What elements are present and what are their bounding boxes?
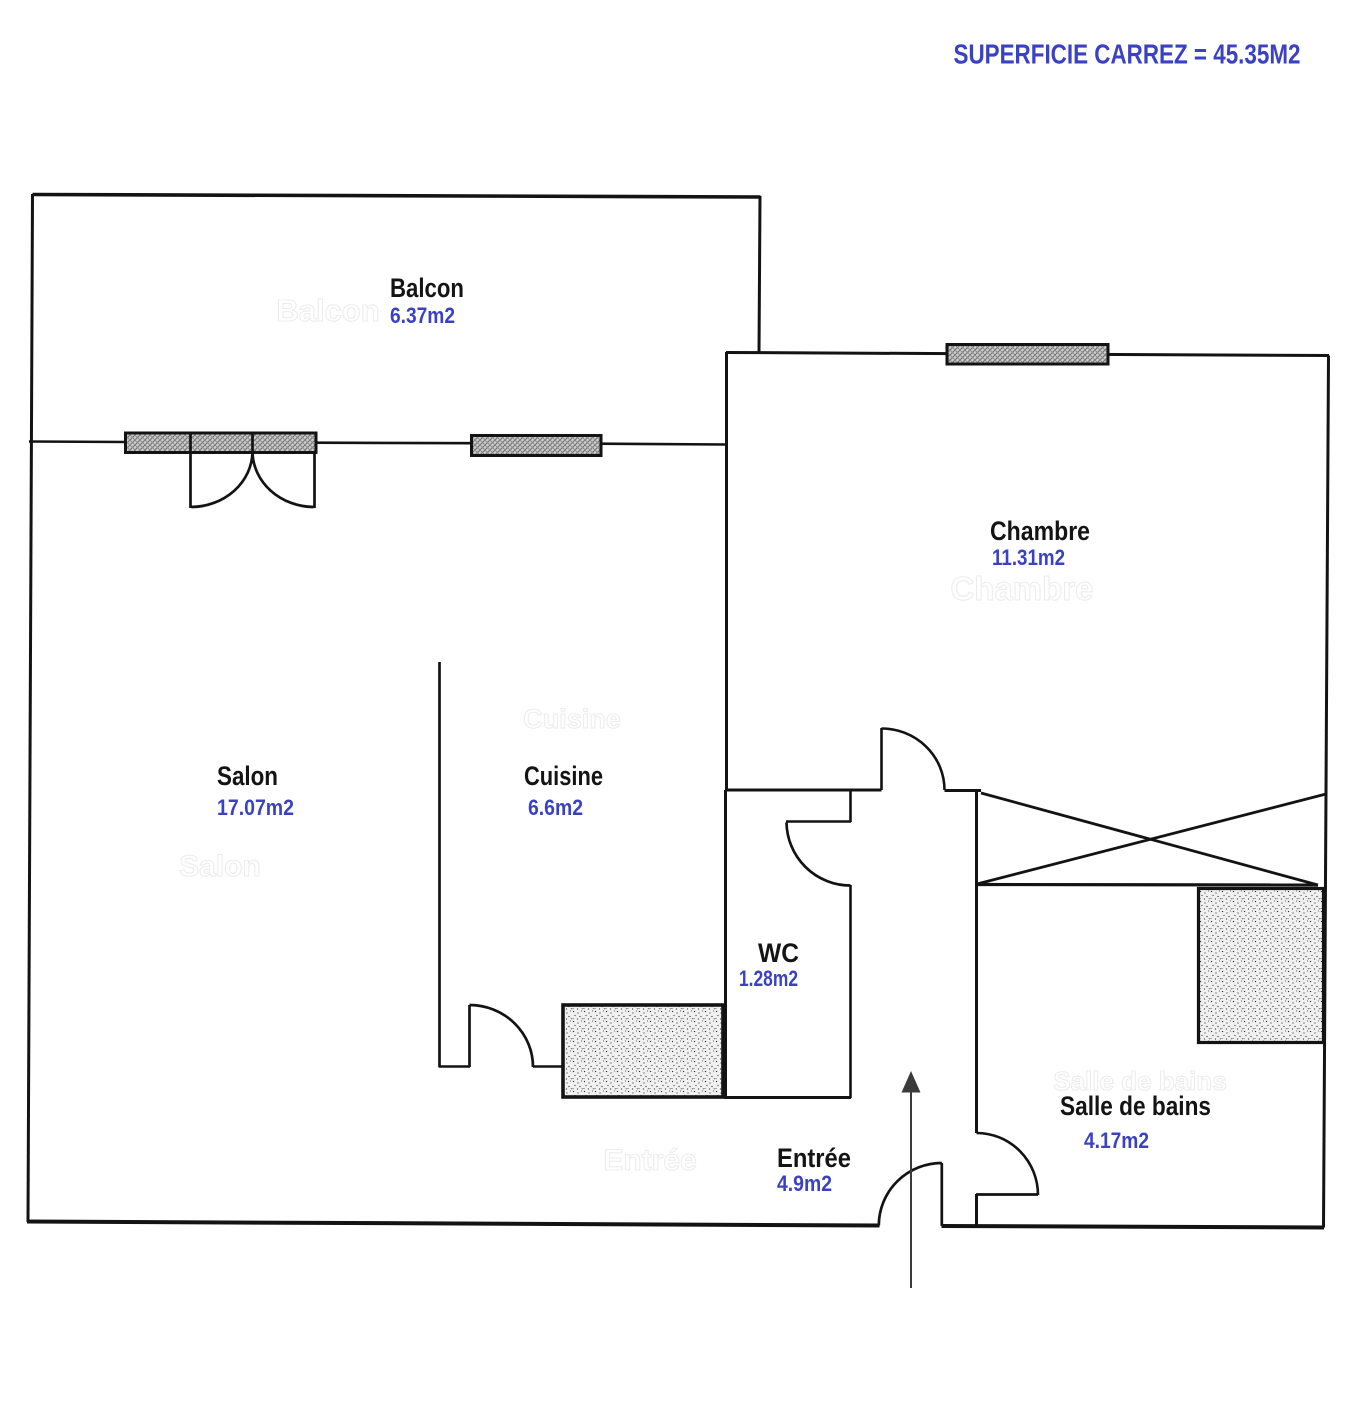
svg-text:Chambre: Chambre — [950, 570, 1093, 607]
svg-text:Balcon: Balcon — [390, 273, 464, 303]
svg-text:1.28m2: 1.28m2 — [739, 966, 798, 991]
svg-text:11.31m2: 11.31m2 — [992, 545, 1065, 570]
svg-text:6.37m2: 6.37m2 — [390, 303, 455, 328]
svg-text:Entrée: Entrée — [603, 1144, 696, 1177]
svg-text:Salon: Salon — [179, 850, 261, 883]
svg-text:4.17m2: 4.17m2 — [1084, 1128, 1149, 1153]
svg-text:4.9m2: 4.9m2 — [777, 1171, 832, 1196]
svg-text:Cuisine: Cuisine — [524, 761, 603, 791]
svg-text:Chambre: Chambre — [990, 516, 1090, 546]
svg-text:6.6m2: 6.6m2 — [528, 795, 583, 820]
svg-text:Entrée: Entrée — [777, 1143, 851, 1173]
svg-text:Salle de bains: Salle de bains — [1060, 1091, 1211, 1121]
svg-text:17.07m2: 17.07m2 — [217, 795, 294, 820]
svg-text:Cuisine: Cuisine — [523, 704, 621, 734]
svg-text:Salon: Salon — [217, 761, 278, 791]
svg-text:SUPERFICIE CARREZ = 45.35M2: SUPERFICIE CARREZ = 45.35M2 — [954, 39, 1301, 70]
svg-text:WC: WC — [758, 938, 799, 968]
svg-text:Balcon: Balcon — [276, 293, 379, 328]
